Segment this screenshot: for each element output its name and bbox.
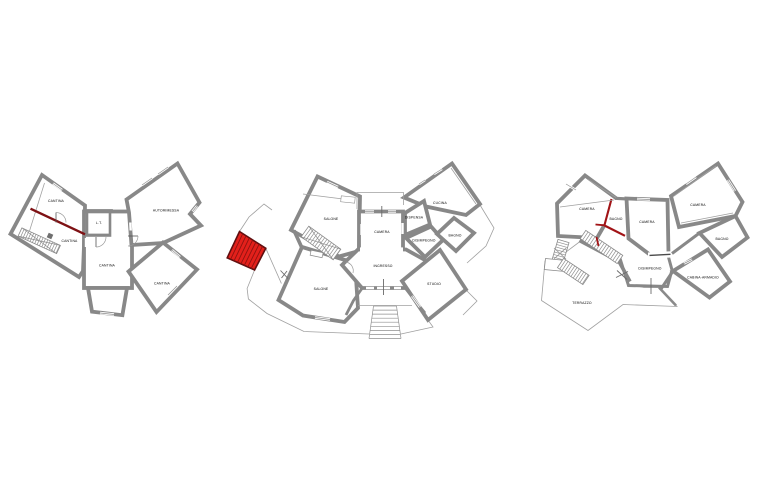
- svg-text:BAGNO: BAGNO: [610, 217, 623, 221]
- svg-text:AUTORIMESSA: AUTORIMESSA: [153, 209, 180, 213]
- svg-text:DISIMPEGNO: DISIMPEGNO: [638, 267, 661, 271]
- svg-text:DISPENSA: DISPENSA: [405, 216, 424, 220]
- svg-text:CANTINA: CANTINA: [62, 239, 79, 243]
- svg-text:CANTINA: CANTINA: [48, 199, 65, 203]
- svg-text:INGRESSO: INGRESSO: [373, 264, 392, 268]
- svg-text:BAGNO: BAGNO: [716, 237, 729, 241]
- svg-text:TERRAZZO: TERRAZZO: [572, 301, 592, 305]
- svg-text:SALONE: SALONE: [314, 287, 329, 291]
- svg-text:CAMERA: CAMERA: [639, 220, 655, 224]
- svg-text:STUDIO: STUDIO: [427, 282, 441, 286]
- svg-text:CUCINA: CUCINA: [433, 201, 447, 205]
- svg-text:CANTINA: CANTINA: [154, 282, 171, 286]
- svg-text:CABINA-ARMADIO: CABINA-ARMADIO: [687, 276, 719, 280]
- svg-text:CAMERA: CAMERA: [374, 230, 390, 234]
- svg-text:DISIMPEGNO: DISIMPEGNO: [412, 239, 435, 243]
- svg-text:BAGNO: BAGNO: [449, 234, 462, 238]
- svg-text:SALONE: SALONE: [324, 217, 339, 221]
- svg-text:CANTINA: CANTINA: [99, 264, 116, 268]
- svg-text:CAMERA: CAMERA: [579, 207, 595, 211]
- svg-text:CAMERA: CAMERA: [690, 203, 706, 207]
- svg-text:L.T.: L.T.: [96, 221, 102, 225]
